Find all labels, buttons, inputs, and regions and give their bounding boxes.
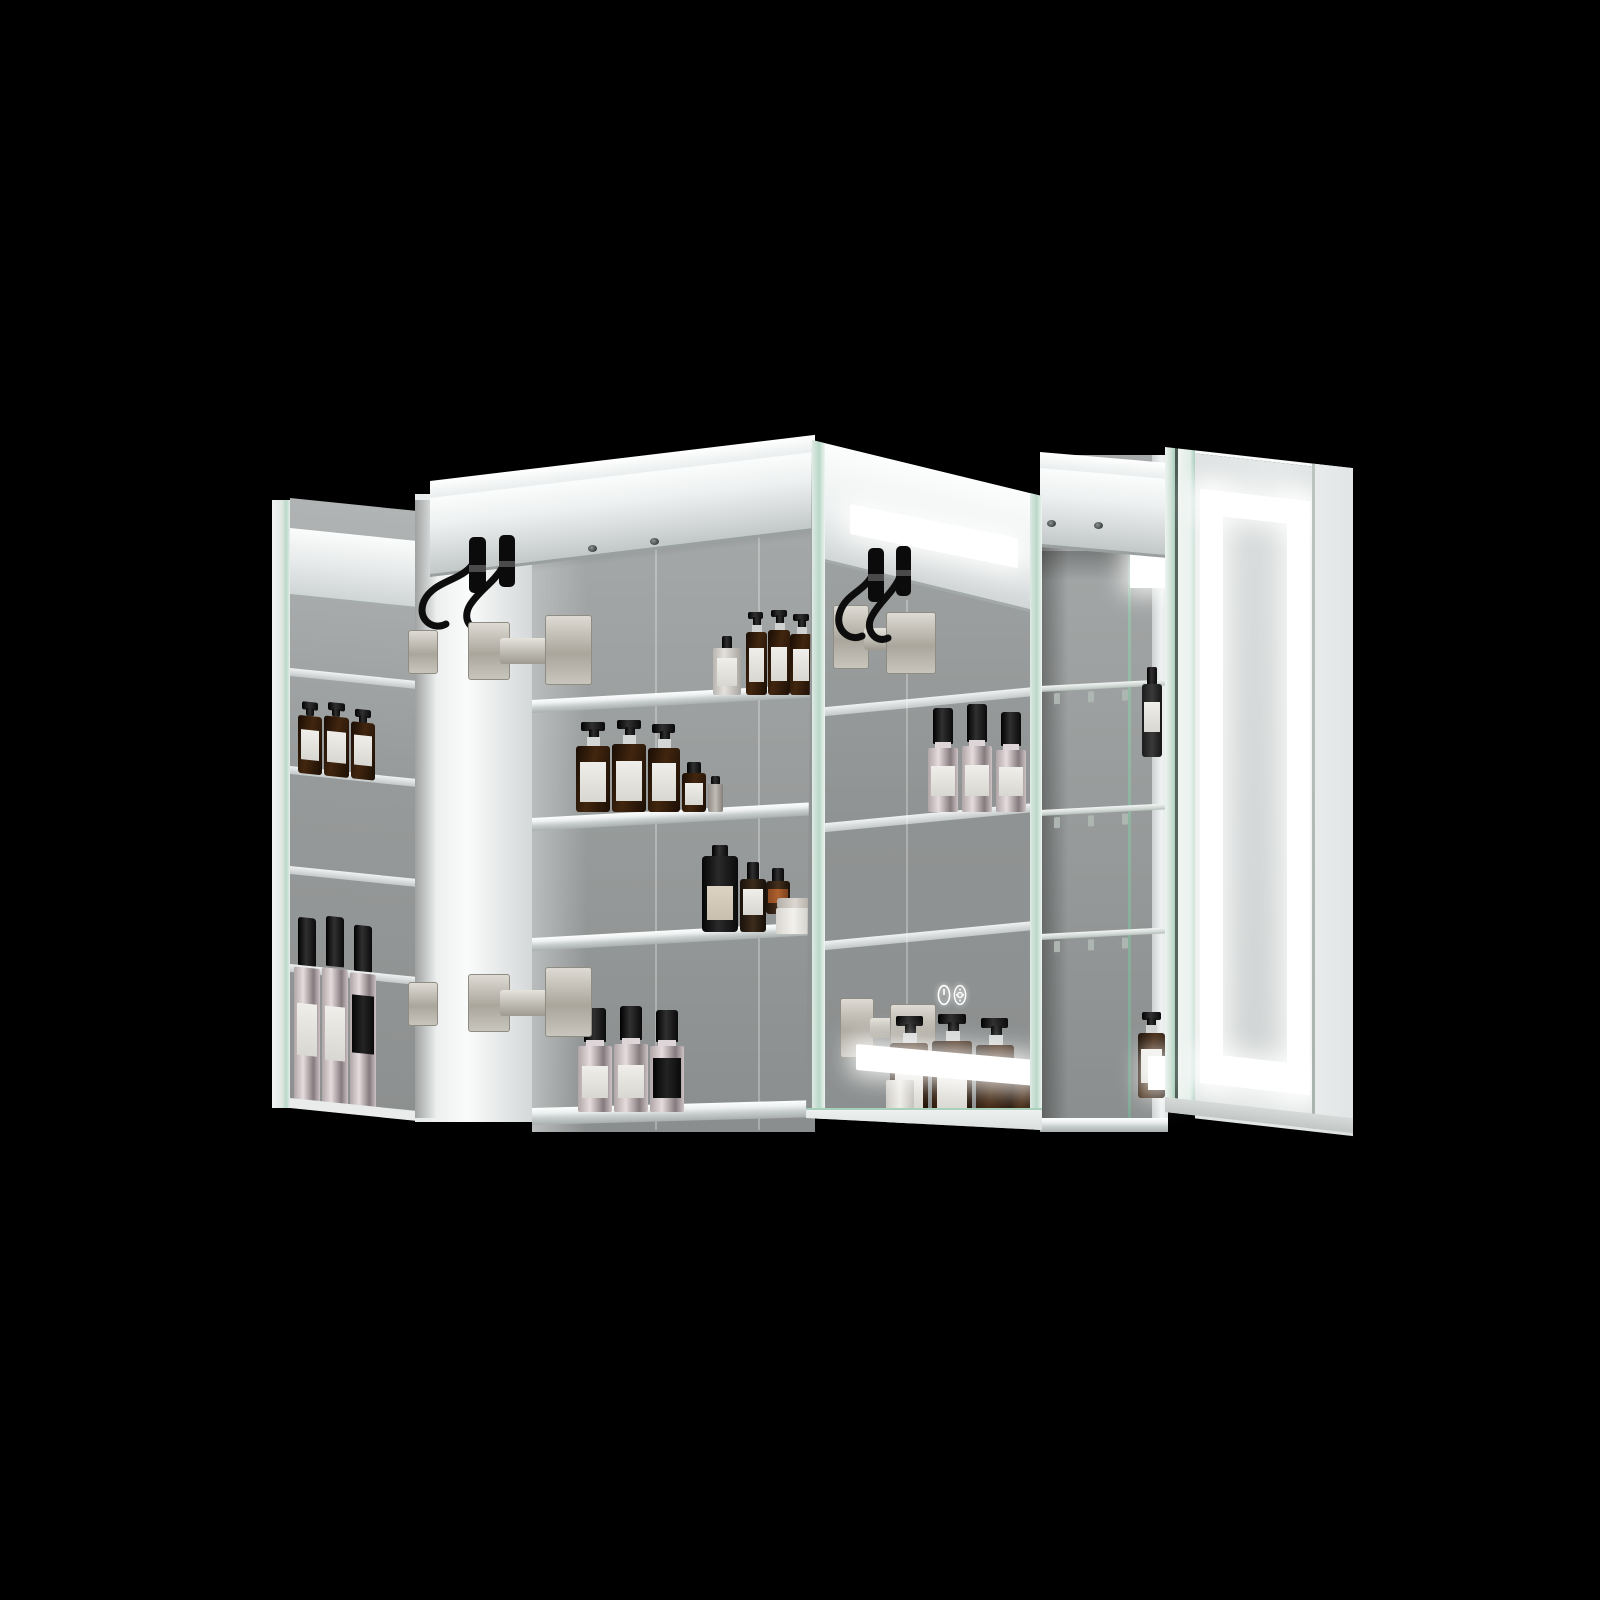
hinge	[404, 612, 594, 697]
shelf-reflection	[290, 866, 415, 887]
door-glass-edge	[1178, 448, 1195, 1115]
bottle-chrome-reflection	[350, 924, 376, 1109]
bottle-chrome-reflection	[996, 712, 1026, 812]
rail-screw	[588, 545, 597, 552]
bottle-amber-pump	[790, 614, 812, 695]
bottle-chrome-reflection	[322, 915, 348, 1106]
bottle-chrome-reflection	[294, 916, 320, 1103]
led-frame-inner-panel	[1223, 517, 1287, 1063]
bottle-dropper	[740, 862, 766, 932]
hinge	[404, 964, 594, 1049]
door-glass-edge	[1165, 447, 1175, 1113]
bottle-amber-reflection	[324, 701, 349, 778]
bottle-gray-small	[708, 776, 723, 812]
product-scene	[0, 0, 1600, 1600]
bottle-amber-pump	[612, 720, 646, 812]
bottle-chrome-reflection	[962, 704, 992, 812]
bottle-amber-pump	[746, 612, 767, 695]
shelf-reflection	[290, 668, 415, 689]
bottle-chrome	[614, 1006, 648, 1112]
led-frame-right	[1287, 499, 1310, 1096]
middle-door-mirror	[806, 440, 1042, 1130]
bottle-black	[702, 845, 738, 932]
bottle-perfume	[713, 648, 741, 695]
rail-screw	[1094, 522, 1103, 529]
right-bay-mirror	[1040, 455, 1168, 1132]
rail-reflection	[290, 528, 415, 610]
shelf-reflection	[816, 920, 1042, 951]
cabinet-bottom	[1040, 1118, 1168, 1132]
door-glass-edge	[1030, 490, 1042, 1130]
led-frame-left	[1200, 489, 1223, 1086]
left-door-edge	[272, 500, 290, 1108]
bottle-amber-reflection	[298, 701, 322, 775]
bottle-amber-pump	[576, 722, 610, 812]
door-face-right	[1315, 464, 1353, 1133]
door-glass-edge	[812, 440, 825, 1130]
power-cable-icon	[830, 540, 950, 660]
bottle-amber-pump	[648, 724, 680, 812]
bottle-dropper-reflection	[1142, 667, 1162, 757]
top-rail-right	[1040, 468, 1168, 558]
rail-screw	[650, 538, 659, 545]
door-bottom-edge	[806, 1108, 1042, 1132]
rail-screw	[1047, 520, 1056, 527]
bottle-amber-small	[682, 762, 706, 812]
bottle-chrome-reflection	[928, 708, 958, 812]
left-door-mirror	[290, 498, 415, 1121]
bottle-chrome-band	[650, 1010, 684, 1112]
brightness-icon[interactable]	[954, 986, 965, 1005]
bottle-amber-reflection	[351, 708, 375, 780]
right-door	[1165, 447, 1353, 1133]
bottle-amber-pump	[768, 610, 790, 695]
